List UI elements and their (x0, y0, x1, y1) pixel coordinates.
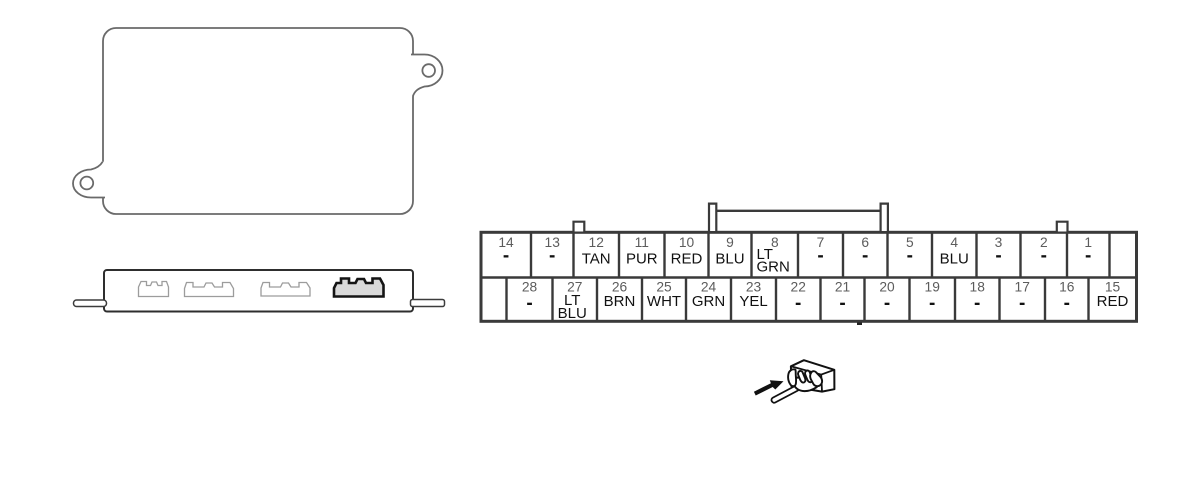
svg-text:TAN: TAN (582, 251, 611, 268)
svg-text:-: - (795, 293, 801, 314)
svg-text:YEL: YEL (739, 293, 767, 310)
svg-text:BLU: BLU (715, 251, 744, 268)
svg-text:-: - (817, 245, 823, 266)
svg-text:BRN: BRN (604, 293, 636, 310)
svg-text:-: - (884, 293, 890, 314)
svg-text:-: - (907, 245, 913, 266)
svg-text:-: - (974, 293, 980, 314)
svg-text:-: - (1041, 245, 1047, 266)
svg-text:BLU: BLU (558, 305, 587, 322)
svg-text:PUR: PUR (626, 251, 658, 268)
svg-text:GRN: GRN (692, 293, 725, 310)
svg-text:11: 11 (635, 235, 649, 250)
svg-text:-: - (839, 293, 845, 314)
svg-text:-: - (1064, 293, 1070, 314)
svg-text:12: 12 (589, 235, 604, 250)
svg-text:BLU: BLU (940, 251, 969, 268)
svg-text:-: - (862, 245, 868, 266)
svg-text:10: 10 (679, 235, 695, 250)
svg-text:RED: RED (1097, 293, 1129, 310)
svg-text:-: - (1019, 293, 1025, 314)
svg-text:-: - (995, 245, 1001, 266)
svg-text:GRN: GRN (757, 258, 790, 275)
svg-text:9: 9 (726, 235, 734, 250)
svg-text:RED: RED (671, 251, 703, 268)
svg-text:WHT: WHT (647, 293, 681, 310)
svg-text:-: - (526, 293, 532, 314)
svg-text:-: - (503, 245, 509, 266)
svg-text:-: - (549, 245, 555, 266)
svg-text:-: - (929, 293, 935, 314)
svg-text:-: - (1085, 245, 1091, 266)
svg-text:4: 4 (950, 235, 958, 250)
